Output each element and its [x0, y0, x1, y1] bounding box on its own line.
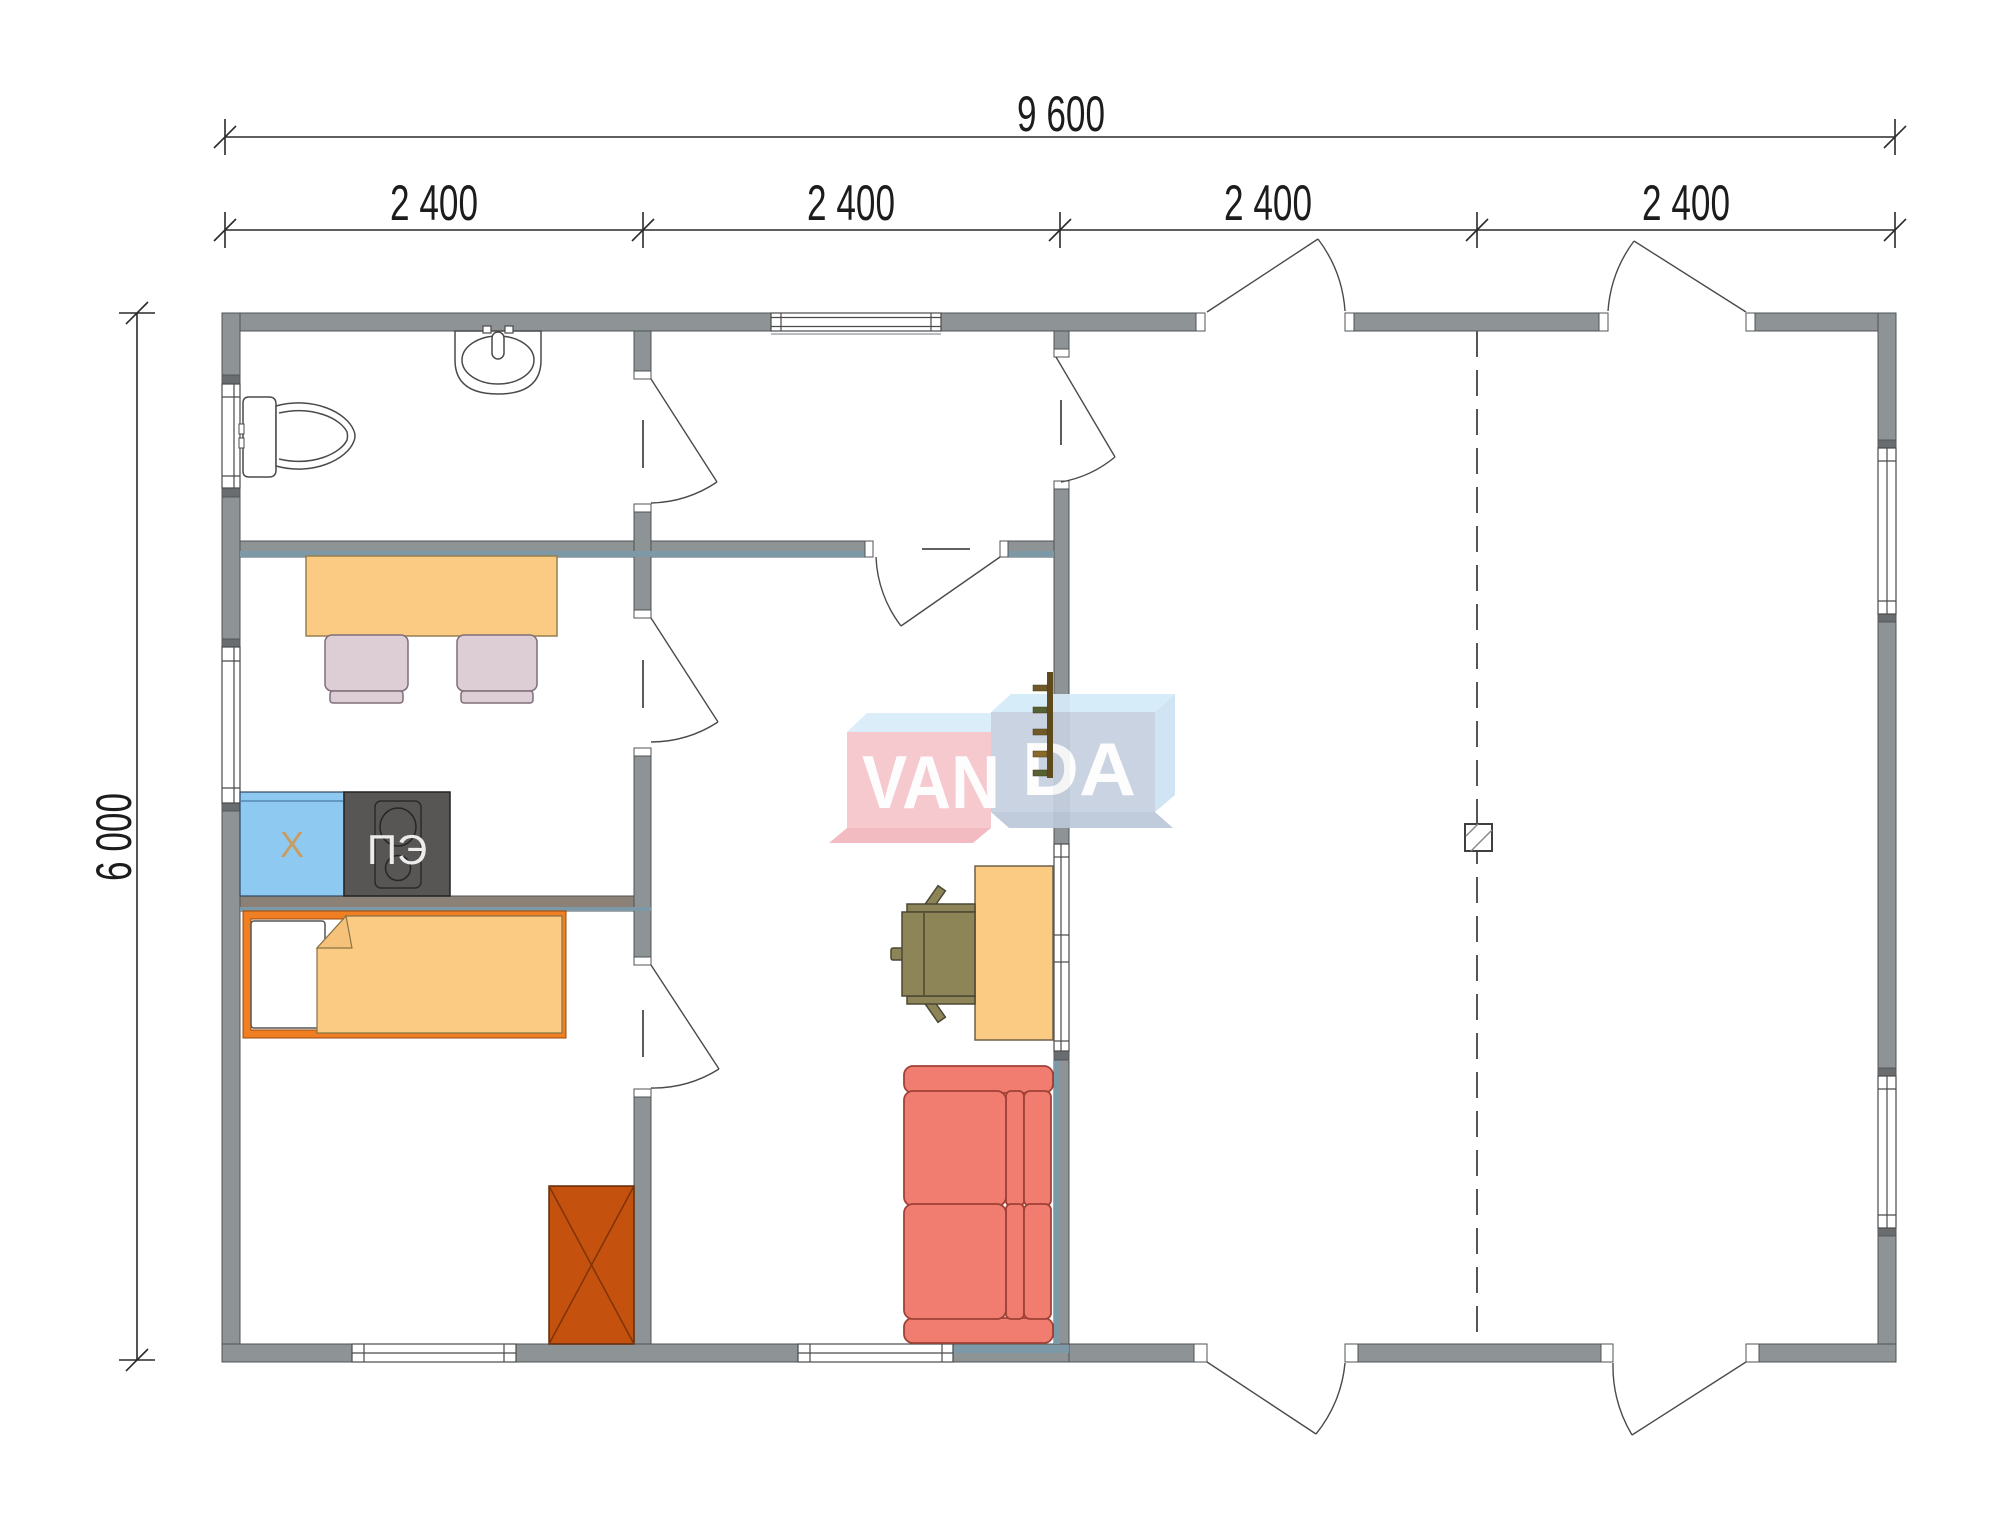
svg-text:6 000: 6 000	[86, 793, 142, 881]
svg-text:Х: Х	[280, 824, 304, 865]
svg-text:ПЭ: ПЭ	[367, 826, 427, 873]
svg-text:DA: DA	[1022, 727, 1136, 811]
svg-text:2 400: 2 400	[390, 175, 478, 231]
svg-text:2 400: 2 400	[1642, 175, 1730, 231]
svg-text:VAN: VAN	[862, 740, 1000, 824]
svg-text:2 400: 2 400	[1224, 175, 1312, 231]
svg-text:9 600: 9 600	[1017, 86, 1105, 142]
svg-text:2 400: 2 400	[807, 175, 895, 231]
